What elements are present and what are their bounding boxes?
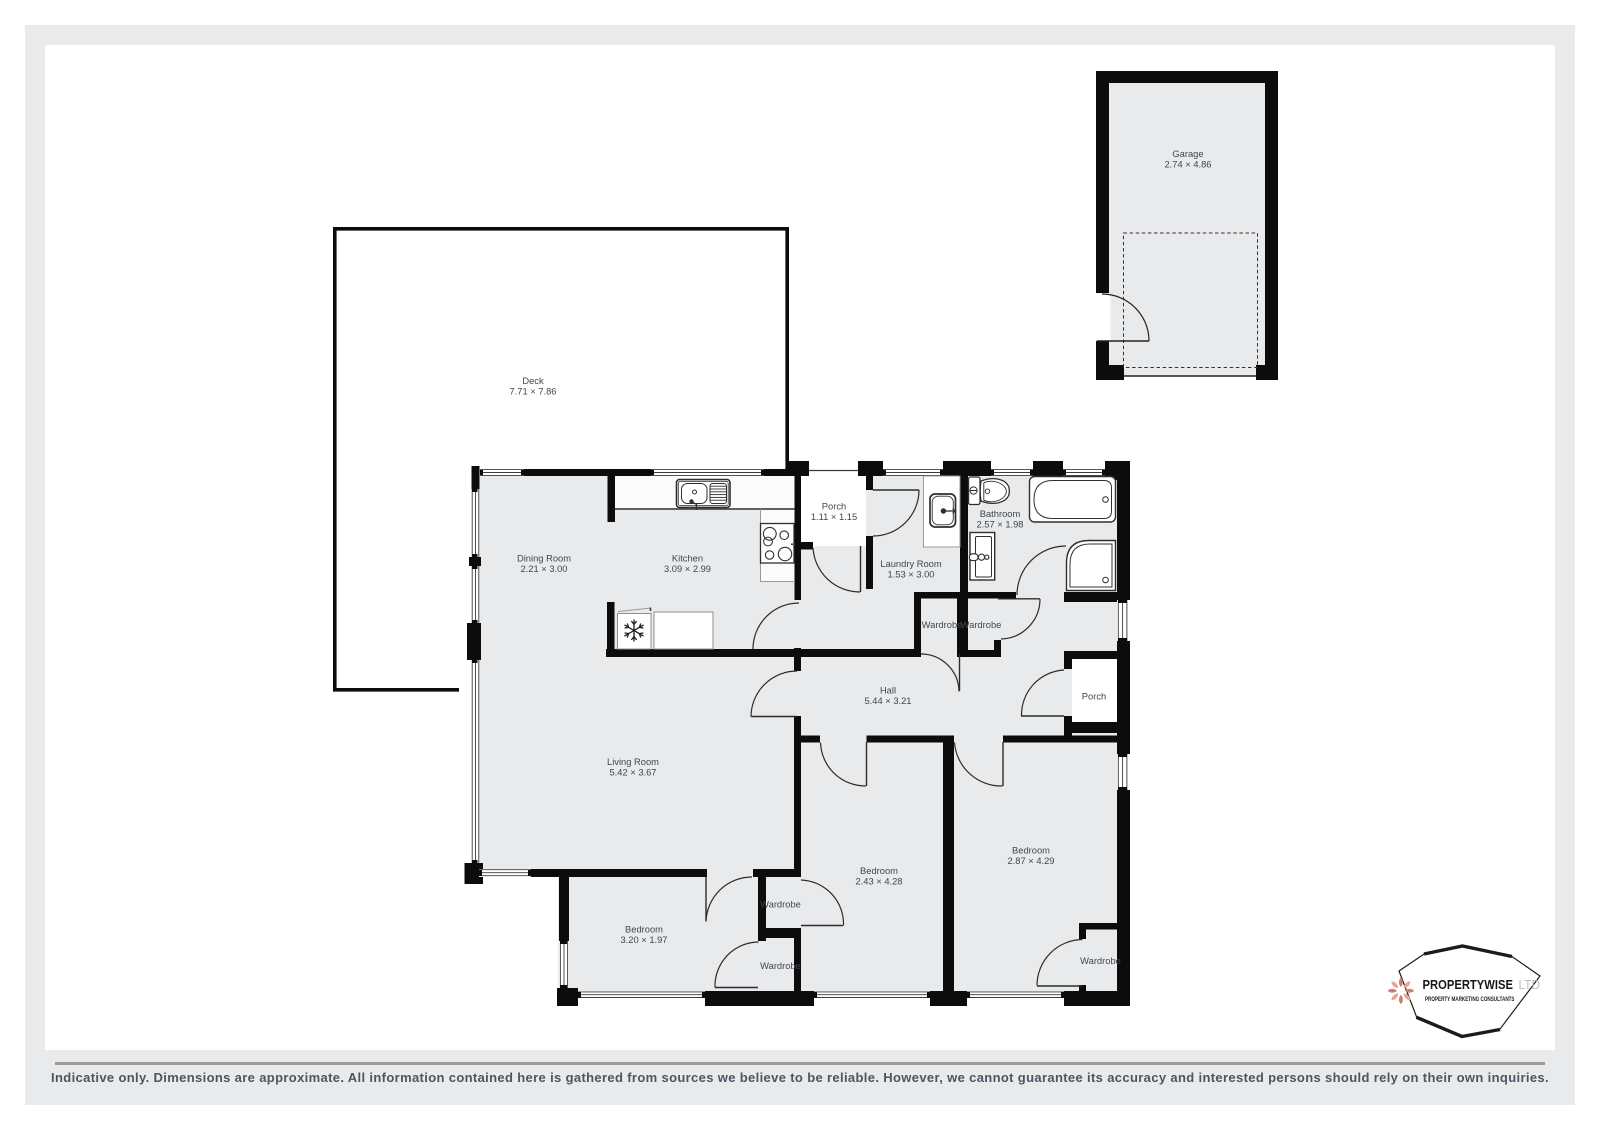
- svg-text:1.53 × 3.00: 1.53 × 3.00: [887, 570, 934, 580]
- svg-text:Porch: Porch: [1082, 692, 1106, 702]
- svg-text:Wardrobe: Wardrobe: [760, 900, 801, 910]
- svg-text:1.11 × 1.15: 1.11 × 1.15: [811, 512, 857, 522]
- svg-text:Bathroom: Bathroom: [980, 509, 1021, 519]
- svg-text:Bedroom: Bedroom: [1012, 846, 1050, 856]
- svg-text:Garage: Garage: [1172, 149, 1203, 159]
- svg-text:Living Room: Living Room: [607, 757, 659, 767]
- svg-text:PROPERTY MARKETING CONSULTANTS: PROPERTY MARKETING CONSULTANTS: [1425, 996, 1515, 1003]
- svg-text:Indicative only. Dimensions ar: Indicative only. Dimensions are approxim…: [51, 1070, 1549, 1085]
- svg-text:Wardrobe: Wardrobe: [961, 620, 1002, 630]
- svg-text:Bedroom: Bedroom: [625, 925, 663, 935]
- svg-text:Laundry Room: Laundry Room: [880, 559, 942, 569]
- svg-text:5.42 × 3.67: 5.42 × 3.67: [609, 768, 656, 778]
- svg-text:Wardrobe: Wardrobe: [760, 961, 801, 971]
- svg-text:2.21 × 3.00: 2.21 × 3.00: [520, 564, 567, 574]
- svg-text:Dining Room: Dining Room: [517, 554, 571, 564]
- svg-text:2.57 × 1.98: 2.57 × 1.98: [976, 520, 1023, 530]
- svg-text:2.74 × 4.86: 2.74 × 4.86: [1164, 160, 1211, 170]
- svg-text:Wardrobe: Wardrobe: [922, 620, 963, 630]
- svg-text:3.09 × 2.99: 3.09 × 2.99: [664, 564, 711, 574]
- svg-text:5.44 × 3.21: 5.44 × 3.21: [864, 696, 911, 706]
- svg-text:2.43 × 4.28: 2.43 × 4.28: [855, 877, 902, 887]
- svg-text:Bedroom: Bedroom: [860, 866, 898, 876]
- svg-text:7.71 × 7.86: 7.71 × 7.86: [509, 387, 556, 397]
- svg-text:Porch: Porch: [822, 502, 846, 512]
- svg-text:3.20 × 1.97: 3.20 × 1.97: [620, 935, 667, 945]
- svg-text:LTD: LTD: [1519, 978, 1541, 992]
- svg-text:Wardrobe: Wardrobe: [1080, 956, 1121, 966]
- svg-text:2.87 × 4.29: 2.87 × 4.29: [1007, 856, 1054, 866]
- svg-text:Deck: Deck: [522, 376, 544, 386]
- svg-text:Kitchen: Kitchen: [672, 554, 703, 564]
- svg-text:PROPERTYWISE: PROPERTYWISE: [1423, 978, 1514, 992]
- svg-text:Hall: Hall: [880, 686, 896, 696]
